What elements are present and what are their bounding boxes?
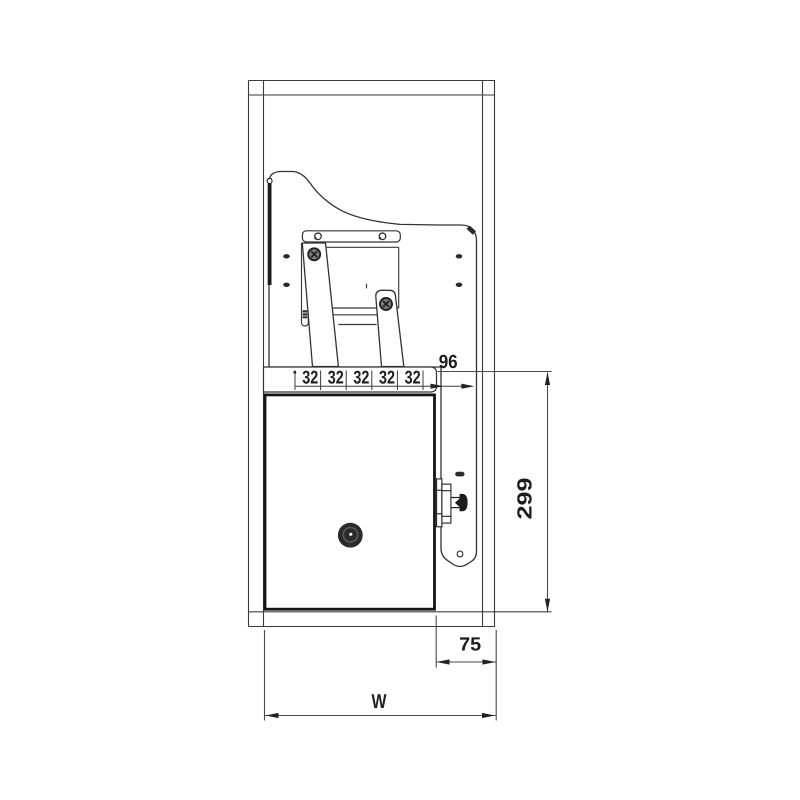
svg-text:W: W xyxy=(372,691,387,713)
svg-text:32: 32 xyxy=(405,366,421,387)
svg-text:299: 299 xyxy=(513,478,536,520)
svg-text:96: 96 xyxy=(439,352,458,373)
svg-text:32: 32 xyxy=(302,366,318,387)
svg-text:32: 32 xyxy=(328,366,344,387)
svg-text:32: 32 xyxy=(379,366,395,387)
svg-text:75: 75 xyxy=(459,635,481,656)
svg-text:32: 32 xyxy=(353,366,369,387)
